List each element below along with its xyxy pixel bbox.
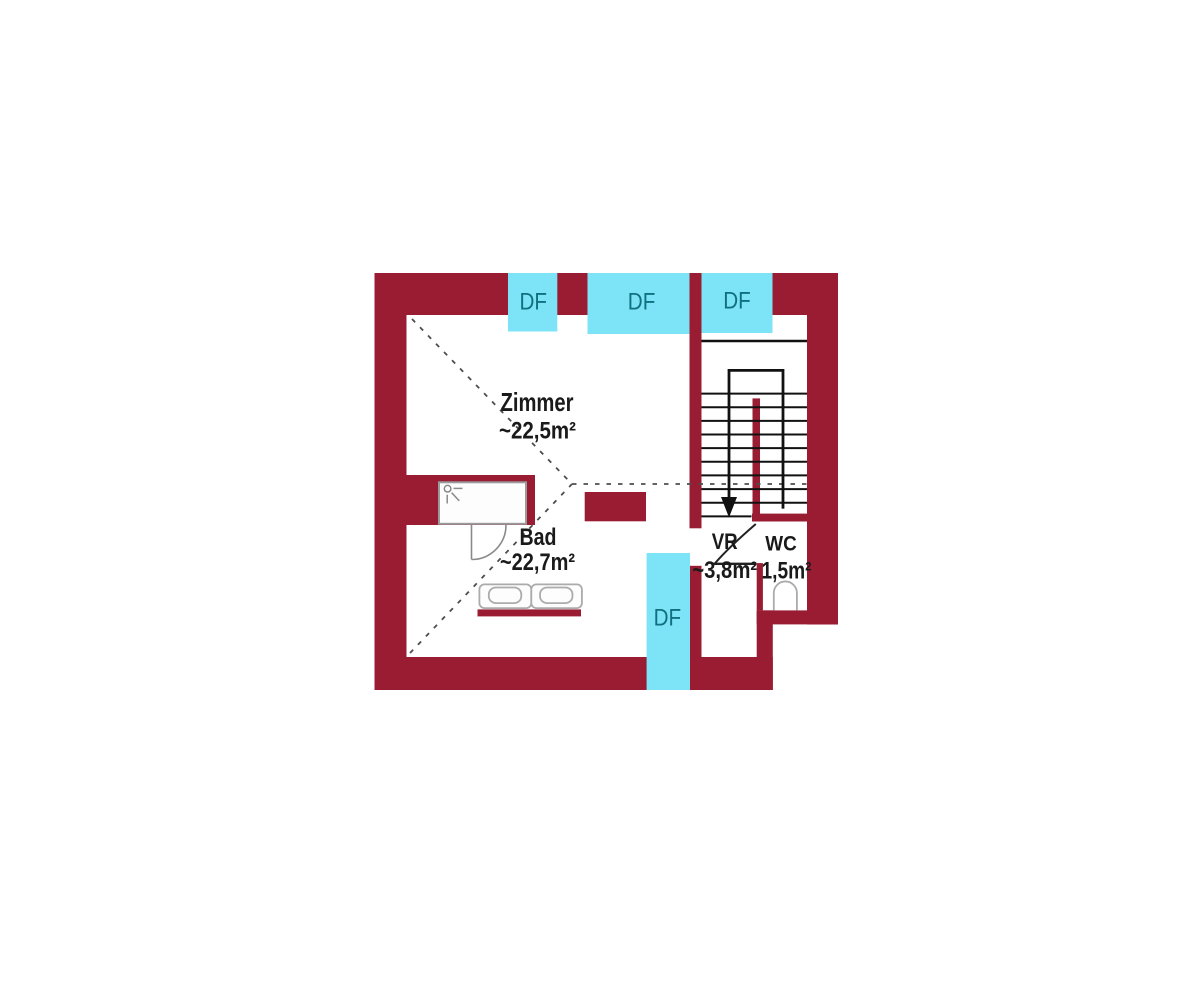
svg-text:DF: DF	[723, 288, 751, 315]
svg-text:~3,8m²: ~3,8m²	[692, 557, 757, 584]
svg-text:~22,5m²: ~22,5m²	[499, 418, 576, 445]
svg-text:DF: DF	[520, 289, 548, 316]
svg-text:WC: WC	[765, 533, 797, 556]
svg-text:~22,7m²: ~22,7m²	[500, 549, 575, 576]
svg-text:Zimmer: Zimmer	[501, 387, 574, 417]
svg-text:Bad: Bad	[520, 524, 557, 551]
svg-text:1,5m²: 1,5m²	[762, 558, 812, 585]
svg-text:DF: DF	[654, 605, 682, 632]
svg-text:DF: DF	[628, 289, 656, 316]
svg-text:VR: VR	[712, 529, 738, 554]
